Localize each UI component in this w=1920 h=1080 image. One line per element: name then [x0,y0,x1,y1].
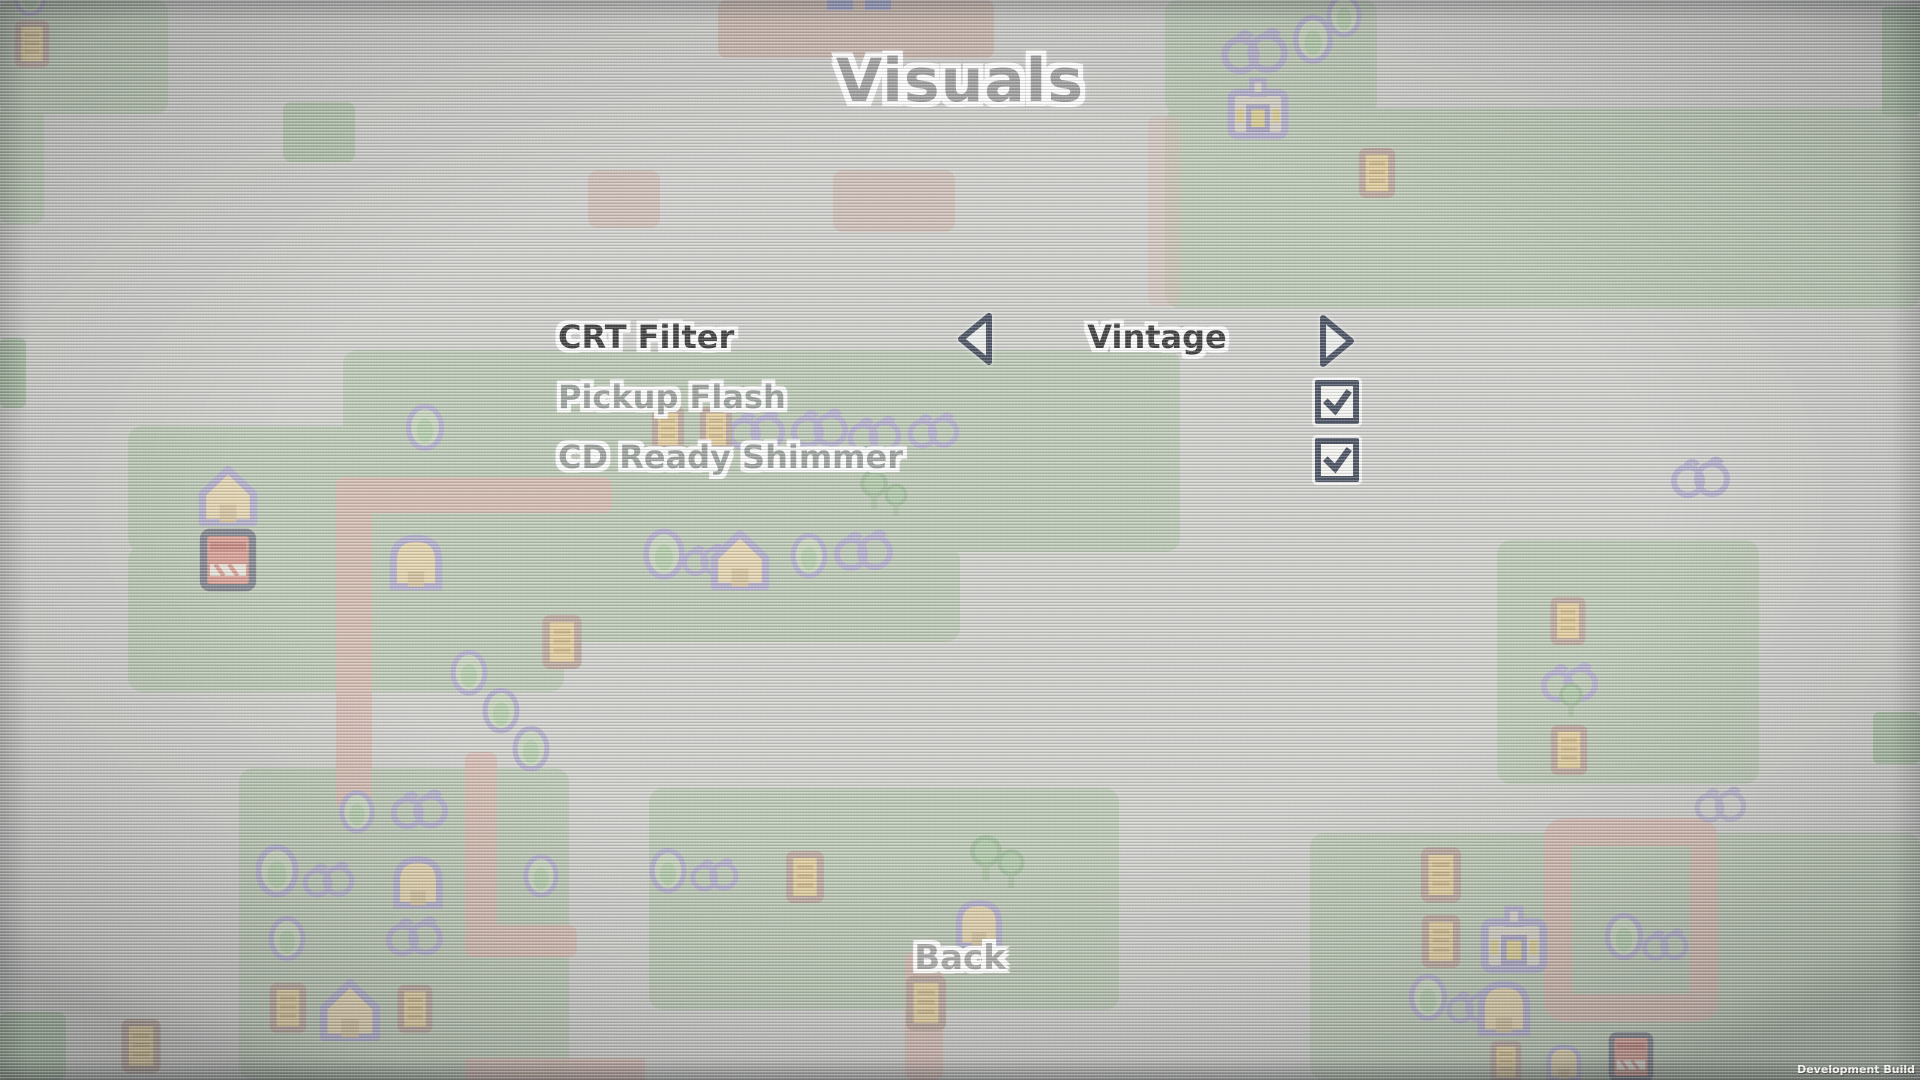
cd-ready-shimmer-checkbox[interactable] [1315,438,1359,482]
development-build-label: Development Build [1797,1063,1915,1076]
back-button[interactable]: Back [0,938,1920,978]
crt-filter-label[interactable]: CRT Filter [558,318,734,356]
left-arrow-icon[interactable] [954,312,996,366]
visuals-settings-screen: Visuals CRT Filter Vintage Pickup Flash … [0,0,1920,1080]
checkmark-icon [1322,387,1352,417]
checkmark-icon [1322,445,1352,475]
cd-ready-shimmer-label[interactable]: CD Ready Shimmer [558,438,903,476]
right-arrow-icon[interactable] [1316,314,1358,368]
pickup-flash-checkbox[interactable] [1315,380,1359,424]
visuals-menu: Visuals CRT Filter Vintage Pickup Flash … [0,0,1920,1080]
pickup-flash-label[interactable]: Pickup Flash [558,378,786,416]
page-title: Visuals [0,46,1920,116]
crt-filter-value: Vintage [1087,318,1226,356]
